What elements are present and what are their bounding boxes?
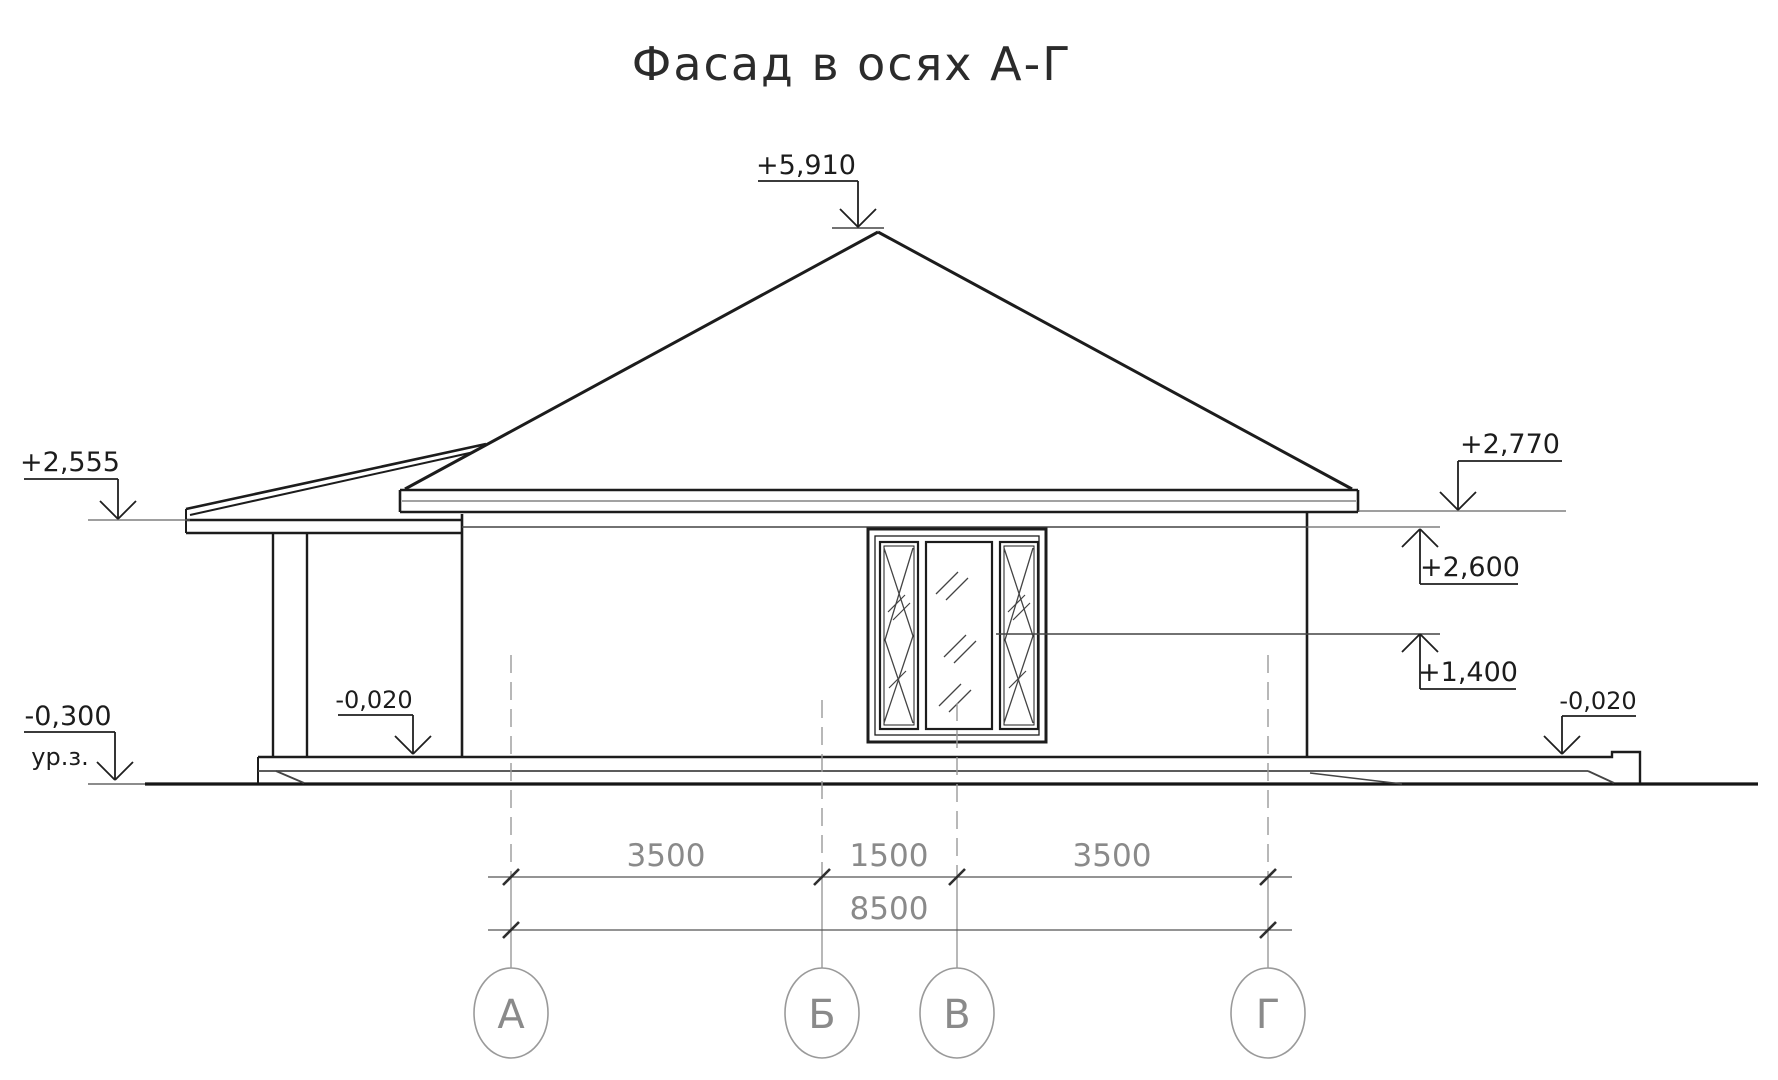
dim-segment-1: 3500 (627, 838, 706, 874)
dimension-line-segments: 3500 1500 3500 (488, 838, 1292, 885)
axis-bubbles: А Б В Г (474, 968, 1305, 1058)
porch-roof (88, 444, 486, 533)
elevation-label-main-eave: +2,770 (1460, 429, 1560, 460)
drawing-title: Фасад в осях А-Г (632, 37, 1073, 91)
elevation-mark-terrace-floor: -0,020 (1544, 687, 1637, 754)
axis-letter-v: В (943, 992, 970, 1038)
axis-letter-a: А (497, 992, 525, 1038)
elevation-label-ridge: +5,910 (756, 150, 856, 181)
elevation-label-ground: -0,300 (24, 701, 111, 732)
dim-total: 8500 (850, 891, 929, 927)
main-roof (400, 232, 1358, 512)
dim-segment-2: 1500 (850, 838, 929, 874)
porch-column (273, 533, 307, 757)
elevation-label-terrace-floor: -0,020 (1559, 687, 1636, 715)
elevation-mark-porch-floor: -0,020 (335, 686, 431, 754)
elevation-mark-ground: -0,300 ур.з. (24, 701, 133, 780)
axis-bubble-b: Б (785, 968, 859, 1058)
ground-level-label: ур.з. (31, 743, 88, 771)
facade-drawing-sheet: Фасад в осях А-Г (0, 0, 1778, 1080)
elevation-mark-main-eave: +2,770 (1440, 429, 1562, 510)
axis-bubble-a: А (474, 968, 548, 1058)
dimension-line-total: 8500 (488, 891, 1292, 938)
elevation-mark-window-mid: +1,400 (1402, 634, 1518, 689)
elevation-label-porch-floor: -0,020 (335, 686, 412, 714)
dim-segment-3: 3500 (1073, 838, 1152, 874)
elevation-label-window-mid: +1,400 (1418, 657, 1518, 688)
elevation-label-wall-top: +2,600 (1420, 552, 1520, 583)
window (868, 529, 1440, 742)
elevation-mark-porch-eave: +2,555 (20, 447, 136, 519)
axis-letter-g: Г (1256, 992, 1280, 1038)
elevation-label-porch-eave: +2,555 (20, 447, 120, 478)
axis-letter-b: Б (808, 992, 835, 1038)
axis-bubble-g: Г (1231, 968, 1305, 1058)
facade-elevation-drawing: Фасад в осях А-Г (0, 0, 1778, 1080)
elevation-mark-wall-top: +2,600 (1402, 529, 1520, 584)
elevation-mark-ridge: +5,910 (756, 150, 884, 228)
plinth-and-slabs (258, 752, 1640, 784)
axis-bubble-v: В (920, 968, 994, 1058)
